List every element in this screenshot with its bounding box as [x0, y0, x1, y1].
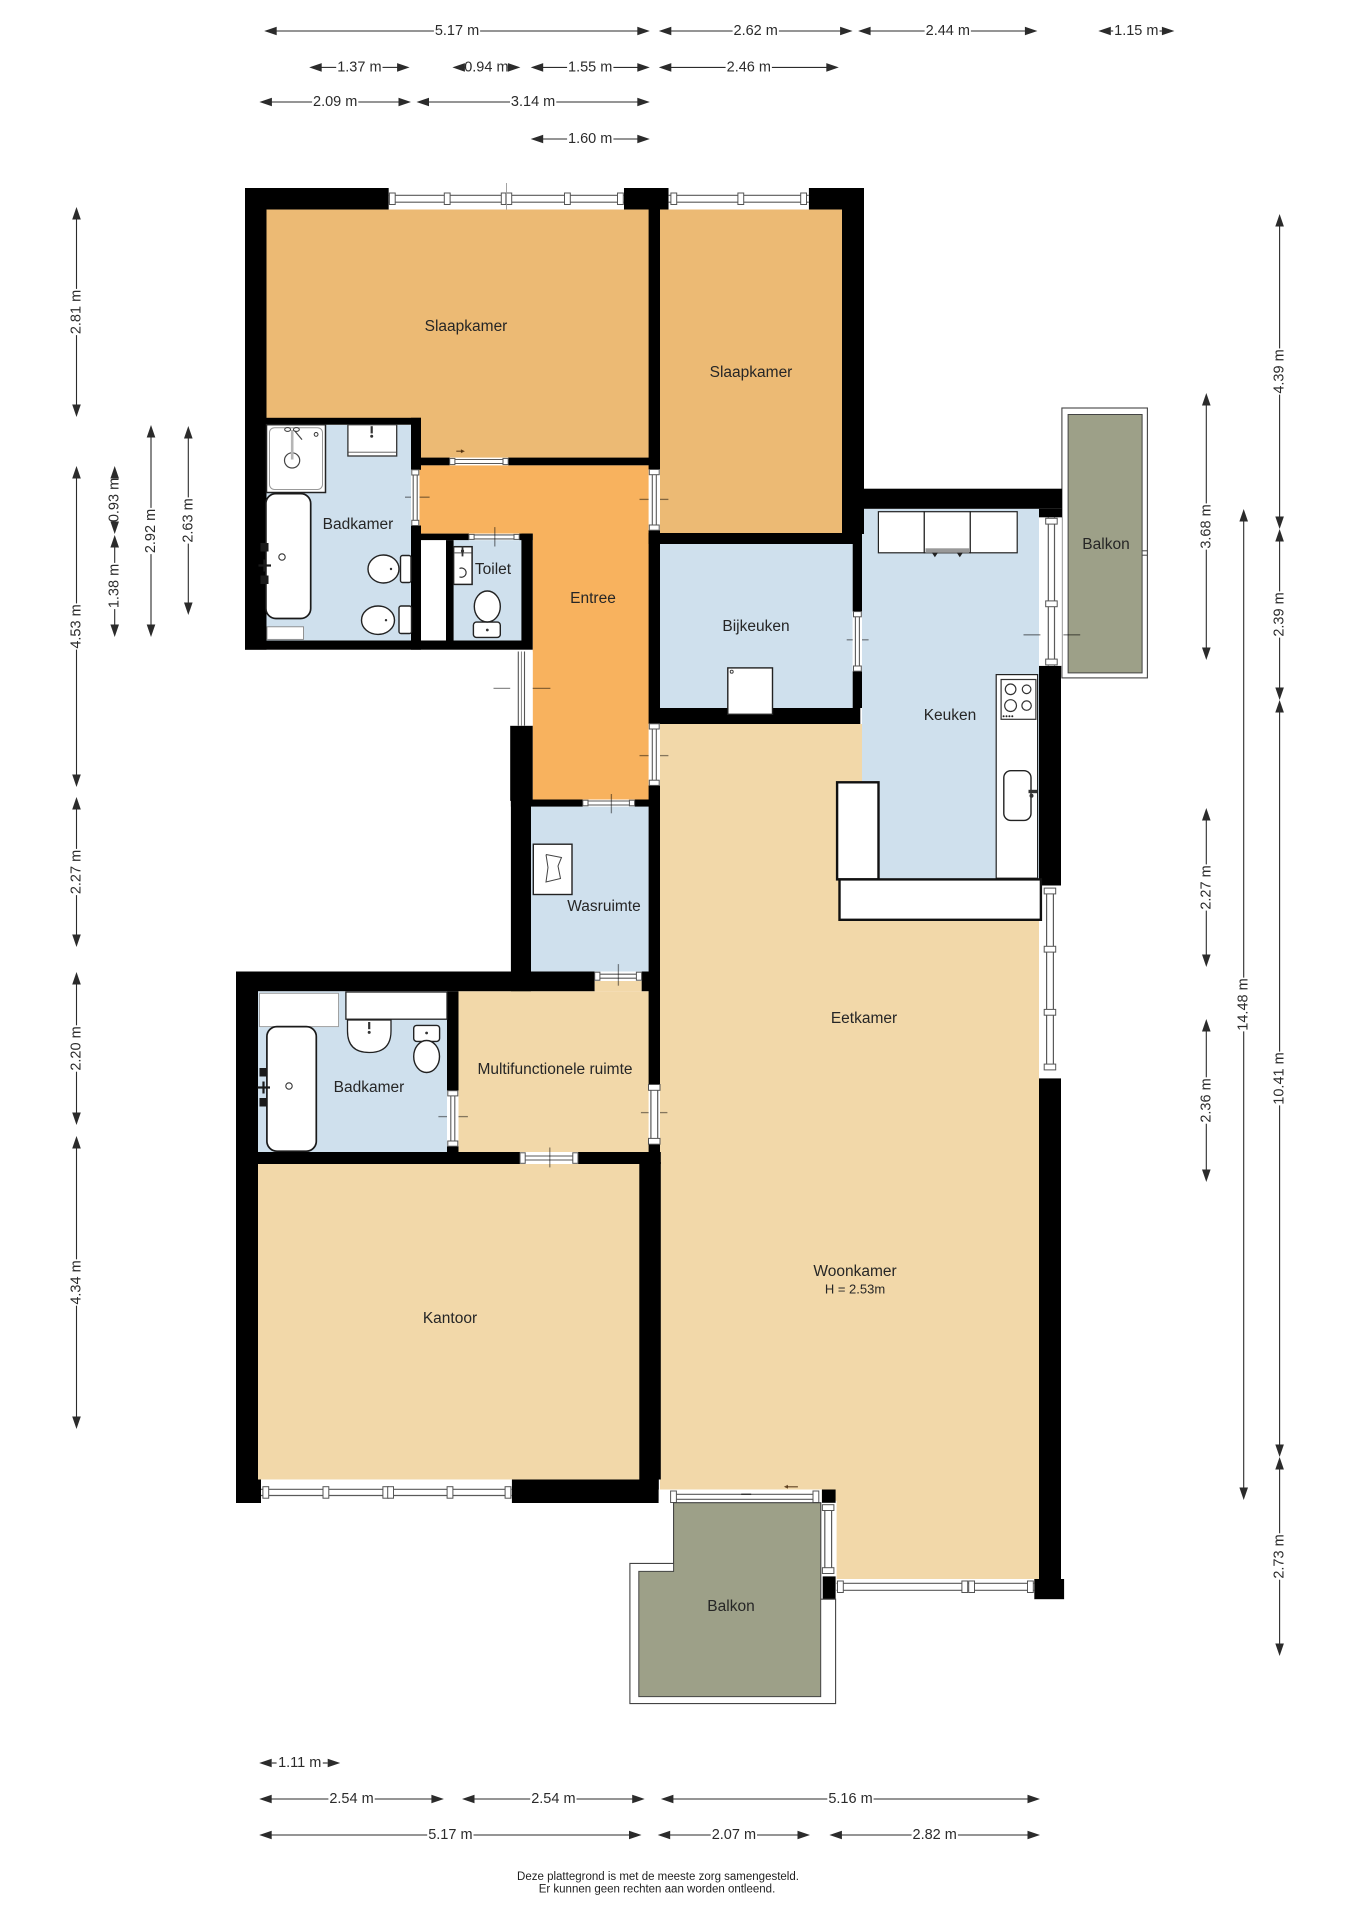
svg-text:2.54 m: 2.54 m [531, 1791, 575, 1807]
svg-text:H = 2.53m: H = 2.53m [825, 1281, 885, 1296]
svg-text:4.39 m: 4.39 m [1272, 349, 1288, 393]
svg-text:Toilet: Toilet [475, 561, 512, 578]
svg-text:2.81 m: 2.81 m [69, 290, 85, 334]
svg-text:2.62 m: 2.62 m [734, 23, 778, 39]
svg-text:Entree: Entree [570, 590, 616, 607]
svg-text:2.63 m: 2.63 m [180, 498, 196, 542]
svg-text:5.17 m: 5.17 m [435, 23, 479, 39]
svg-text:2.46 m: 2.46 m [727, 59, 771, 75]
svg-text:10.41 m: 10.41 m [1272, 1052, 1288, 1104]
svg-text:1.38 m: 1.38 m [107, 564, 123, 608]
svg-text:1.15 m: 1.15 m [1114, 23, 1158, 39]
svg-text:2.27 m: 2.27 m [1198, 865, 1214, 909]
svg-text:Eetkamer: Eetkamer [831, 1010, 897, 1027]
svg-text:1.60 m: 1.60 m [568, 131, 612, 147]
svg-text:Badkamer: Badkamer [323, 516, 394, 533]
svg-text:Kantoor: Kantoor [423, 1310, 477, 1327]
svg-text:2.27 m: 2.27 m [69, 850, 85, 894]
svg-text:Balkon: Balkon [1082, 536, 1129, 553]
svg-text:Balkon: Balkon [707, 1598, 754, 1615]
svg-text:Slaapkamer: Slaapkamer [425, 318, 508, 335]
svg-text:2.20 m: 2.20 m [69, 1026, 85, 1070]
svg-text:2.82 m: 2.82 m [913, 1827, 957, 1843]
svg-text:Keuken: Keuken [924, 707, 977, 724]
svg-text:Wasruimte: Wasruimte [567, 898, 641, 915]
svg-text:3.68 m: 3.68 m [1198, 504, 1214, 548]
svg-text:2.92 m: 2.92 m [143, 509, 159, 553]
svg-text:2.36 m: 2.36 m [1198, 1078, 1214, 1122]
svg-text:2.44 m: 2.44 m [926, 23, 970, 39]
svg-text:5.16 m: 5.16 m [828, 1791, 872, 1807]
svg-text:14.48 m: 14.48 m [1236, 978, 1252, 1030]
svg-text:1.11 m: 1.11 m [278, 1755, 321, 1771]
svg-text:Multifunctionele ruimte: Multifunctionele ruimte [477, 1061, 632, 1078]
svg-text:5.17 m: 5.17 m [428, 1827, 472, 1843]
svg-text:Er kunnen geen rechten aan wor: Er kunnen geen rechten aan worden ontlee… [539, 1884, 776, 1896]
svg-text:Slaapkamer: Slaapkamer [710, 364, 793, 381]
svg-text:Bijkeuken: Bijkeuken [722, 618, 789, 635]
svg-text:Woonkamer: Woonkamer [813, 1263, 896, 1280]
svg-text:2.07 m: 2.07 m [712, 1827, 756, 1843]
svg-text:1.55 m: 1.55 m [568, 59, 612, 75]
svg-text:1.37 m: 1.37 m [337, 59, 381, 75]
svg-text:4.53 m: 4.53 m [69, 604, 85, 648]
svg-text:Deze plattegrond is met de mee: Deze plattegrond is met de meeste zorg s… [517, 1871, 799, 1883]
svg-text:0.94 m: 0.94 m [464, 59, 508, 75]
svg-text:Badkamer: Badkamer [334, 1079, 405, 1096]
svg-text:2.09 m: 2.09 m [313, 94, 357, 110]
svg-text:4.34 m: 4.34 m [69, 1260, 85, 1304]
svg-text:2.73 m: 2.73 m [1272, 1534, 1288, 1578]
svg-text:2.39 m: 2.39 m [1272, 592, 1288, 636]
svg-text:0.93 m: 0.93 m [107, 478, 123, 522]
svg-text:2.54 m: 2.54 m [329, 1791, 373, 1807]
svg-text:3.14 m: 3.14 m [511, 94, 555, 110]
